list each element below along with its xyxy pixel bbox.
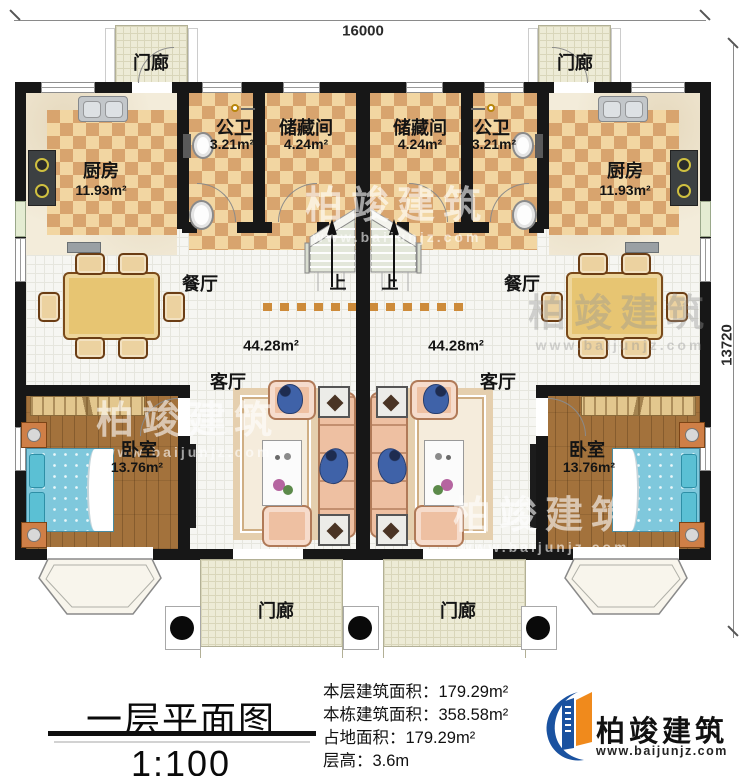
stat-label: 本栋建筑面积：	[323, 706, 439, 724]
wall-bedroom-right	[178, 385, 190, 398]
dimension-depth-label: 13720	[719, 324, 736, 366]
dining-chair	[118, 253, 148, 275]
porch-column	[348, 616, 372, 640]
kitchen-sink	[78, 96, 128, 122]
stat-value: 179.29m²	[406, 729, 476, 747]
stat-value: 179.29m²	[439, 683, 509, 701]
end-table	[318, 386, 350, 418]
sink-icon	[512, 200, 537, 230]
sink-icon	[189, 200, 214, 230]
stat-label: 占地面积：	[323, 729, 406, 747]
wardrobe	[30, 396, 145, 416]
burner	[35, 184, 49, 198]
tv-cabinet	[190, 444, 196, 528]
end-table	[376, 514, 408, 546]
flower-decor	[433, 485, 443, 495]
window	[15, 238, 26, 282]
bay-window	[38, 558, 162, 616]
room-area-kitchen-left: 11.93m²	[75, 182, 126, 198]
wall-bedroom-right	[536, 385, 548, 398]
window	[41, 82, 95, 93]
room-label-kitchen-left: 厨房	[83, 157, 119, 183]
stat-value: 358.58m²	[439, 706, 509, 724]
counter-appliance	[67, 242, 101, 253]
toilet-tank	[535, 134, 543, 158]
table-inlay	[383, 523, 400, 540]
window	[202, 82, 242, 93]
window	[484, 82, 524, 93]
nightstand	[679, 422, 705, 448]
sink-basin	[105, 101, 123, 118]
bay-window	[564, 558, 688, 616]
title-underline-thin	[54, 741, 310, 743]
room-label-porch-bottom-left: 门廊	[258, 597, 294, 623]
porch-side-wing	[188, 28, 198, 87]
pillow	[29, 454, 45, 488]
room-area-bath-right: 3.21m²	[472, 136, 516, 152]
person-figure	[423, 384, 449, 414]
dining-chair	[666, 292, 688, 322]
wall-bath-storage	[253, 82, 265, 222]
room-label-living-left: 客厅	[210, 368, 246, 394]
dining-chair	[578, 337, 608, 359]
nightstand	[21, 522, 47, 548]
stairs-up-label-left: 上	[330, 269, 347, 294]
nightstand-decor	[685, 528, 699, 542]
counter-appliance	[625, 242, 659, 253]
kitchen-sink	[598, 96, 648, 122]
dining-chair	[621, 337, 651, 359]
coffee-table	[424, 440, 464, 506]
toilet-tank	[183, 134, 191, 158]
light-cord	[241, 108, 255, 110]
stat-value: 3.6m	[373, 752, 410, 770]
end-table	[318, 514, 350, 546]
room-label-dining-left: 餐厅	[182, 270, 218, 296]
wall-bedroom-right	[536, 436, 548, 560]
pillow	[681, 492, 697, 526]
partition-dashes	[370, 303, 463, 311]
dimension-tick	[699, 9, 710, 20]
room-area-storage-left: 4.24m²	[284, 136, 328, 152]
porch-side-wing	[105, 28, 115, 87]
light-fixture-icon	[487, 104, 495, 112]
room-label-living-right: 客厅	[480, 368, 516, 394]
room-area-bath-left: 3.21m²	[210, 136, 254, 152]
person-figure	[277, 384, 303, 414]
dining-table	[566, 272, 663, 340]
porch-column	[526, 616, 550, 640]
room-area-storage-right: 4.24m²	[398, 136, 442, 152]
brand-site: www.baijunjz.com	[596, 744, 728, 758]
flower-decor	[283, 485, 293, 495]
hall-area-right: 44.28m²	[428, 338, 484, 355]
porch-side-wing	[611, 28, 621, 87]
dining-chair	[75, 337, 105, 359]
kitchen-window	[15, 201, 26, 237]
wall-left	[15, 82, 26, 560]
porch-column	[170, 616, 194, 640]
wall-block-bottom	[454, 222, 489, 233]
stat-row: 层高：3.6m	[323, 750, 508, 773]
burner	[677, 158, 691, 172]
room-area-bedroom-right: 13.76m²	[563, 459, 615, 475]
stat-row: 占地面积：179.29m²	[323, 727, 508, 750]
brand-logo-icon	[542, 686, 594, 764]
dining-chair	[118, 337, 148, 359]
pillow	[681, 454, 697, 488]
wall-block-bottom	[237, 222, 272, 233]
bed-sheet	[87, 449, 113, 531]
sink-basin	[83, 101, 101, 118]
door-opening	[132, 82, 172, 93]
stat-label: 层高：	[323, 752, 373, 770]
dining-chair	[578, 253, 608, 275]
window	[406, 82, 443, 93]
light-fixture-icon	[231, 104, 239, 112]
window	[631, 82, 685, 93]
nightstand	[21, 422, 47, 448]
door-opening	[554, 82, 594, 93]
armchair	[262, 505, 312, 547]
nightstand-decor	[27, 428, 41, 442]
plan-stats: 本层建筑面积：179.29m² 本栋建筑面积：358.58m² 占地面积：179…	[323, 681, 508, 773]
armchair	[414, 505, 464, 547]
dimension-width-label: 16000	[342, 23, 384, 40]
wall-center	[363, 82, 370, 560]
dimension-tick	[9, 9, 20, 20]
table-inlay	[327, 523, 344, 540]
wall-bath-storage	[461, 82, 473, 222]
dining-chair	[38, 292, 60, 322]
burner	[35, 158, 49, 172]
staircase	[298, 195, 358, 295]
burner	[677, 184, 691, 198]
table-inlay	[327, 395, 344, 412]
sink-basin	[625, 101, 643, 118]
dining-chair	[75, 253, 105, 275]
dining-table	[63, 272, 160, 340]
stat-label: 本层建筑面积：	[323, 683, 439, 701]
kitchen-window	[700, 201, 711, 237]
title-underline	[48, 731, 316, 736]
bed-sheet	[613, 449, 639, 531]
nightstand-decor	[685, 428, 699, 442]
tv-cabinet	[530, 444, 536, 528]
table-inlay	[383, 395, 400, 412]
porch-step	[384, 646, 525, 658]
stove	[28, 150, 56, 206]
porch-step	[201, 646, 342, 658]
cup-decor	[446, 455, 451, 460]
porch-side-wing	[528, 28, 538, 87]
pillow	[29, 492, 45, 526]
partition-dashes	[263, 303, 356, 311]
stairs-up-label-right: 上	[382, 269, 399, 294]
room-area-kitchen-right: 11.93m²	[599, 182, 650, 198]
wardrobe	[581, 396, 696, 416]
wall-left	[700, 82, 711, 560]
nightstand	[679, 522, 705, 548]
dining-chair	[621, 253, 651, 275]
dining-chair	[541, 292, 563, 322]
coffee-table	[262, 440, 302, 506]
room-label-dining-right: 餐厅	[504, 270, 540, 296]
nightstand-decor	[27, 528, 41, 542]
floor-plan-canvas: 柏竣建筑www.baijunjz.com 柏竣建筑www.baijunjz.co…	[0, 0, 750, 776]
window	[283, 82, 320, 93]
room-label-porch-top-right: 门廊	[557, 49, 593, 75]
cup-decor	[435, 453, 442, 460]
cup-decor	[284, 453, 291, 460]
sink-basin	[603, 101, 621, 118]
stove	[670, 150, 698, 206]
wall-bedroom-top	[548, 385, 711, 396]
wall-bedroom-right	[178, 436, 190, 560]
wall-bedroom-top	[15, 385, 178, 396]
stat-row: 本栋建筑面积：358.58m²	[323, 704, 508, 727]
door-opening	[536, 398, 548, 436]
window	[700, 238, 711, 282]
dining-chair	[163, 292, 185, 322]
room-label-kitchen-right: 厨房	[607, 157, 643, 183]
light-cord	[471, 108, 485, 110]
hall-area-left: 44.28m²	[243, 338, 299, 355]
room-area-bedroom-left: 13.76m²	[111, 459, 163, 475]
room-label-porch-top-left: 门廊	[133, 49, 169, 75]
door-opening	[178, 398, 190, 436]
cup-decor	[275, 455, 280, 460]
end-table	[376, 386, 408, 418]
plan-scale: 1:100	[131, 743, 231, 776]
stat-row: 本层建筑面积：179.29m²	[323, 681, 508, 704]
wall-center	[356, 82, 363, 560]
room-label-porch-bottom-right: 门廊	[440, 597, 476, 623]
